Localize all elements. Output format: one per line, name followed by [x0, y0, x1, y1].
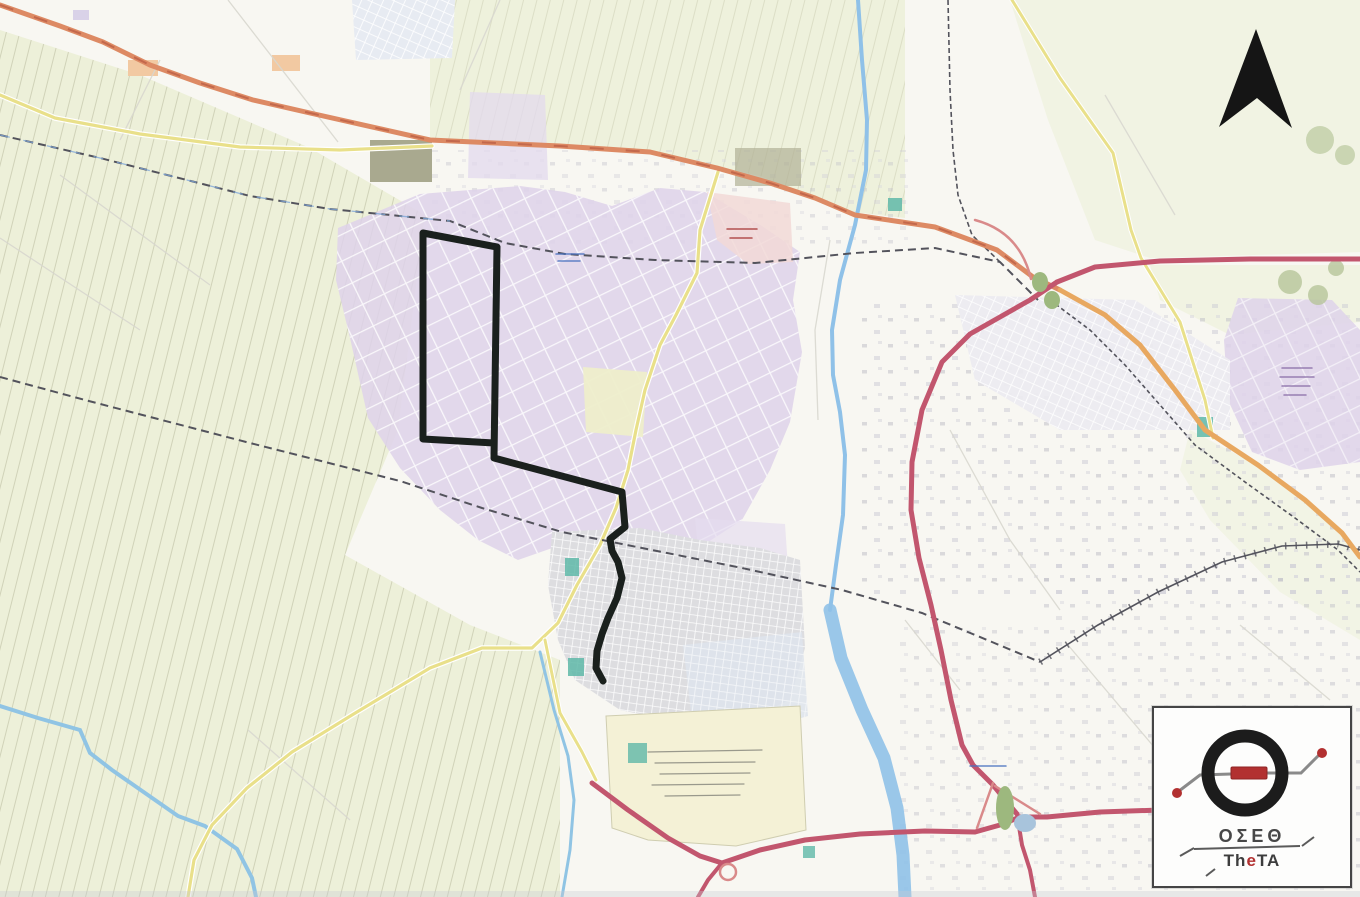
interchange-water: [1014, 814, 1036, 832]
emblem-right-node: [1317, 748, 1327, 758]
teal-field-5: [628, 743, 647, 763]
tree-patch-3: [1328, 260, 1344, 276]
teal-field-6: [803, 846, 815, 858]
interchange-green-1: [1032, 272, 1048, 292]
purple-block-nw: [73, 10, 89, 20]
teal-field-3: [888, 198, 902, 211]
emblem-left-node: [1172, 788, 1182, 798]
zone-grid-northwest-streets: [352, 0, 455, 60]
teal-field-2: [568, 658, 584, 676]
tree-patch-1: [1278, 270, 1302, 294]
tree-patch-4: [1306, 126, 1334, 154]
logo-text-red-e: e: [1246, 851, 1256, 870]
scan-edge: [0, 891, 1360, 897]
logo-text-latin-pre: Th: [1224, 851, 1247, 870]
tree-patch-5: [1335, 145, 1355, 165]
logo-text-greek: ΟΣΕΘ: [1154, 826, 1350, 847]
theta-red-bar: [1231, 767, 1267, 779]
logo-text-latin: TheTA: [1154, 851, 1350, 871]
interchange-green-3: [996, 786, 1014, 830]
zone-industrial-patch-north: [468, 92, 548, 180]
zone-campus: [606, 706, 806, 846]
logo-text-latin-post: TA: [1257, 851, 1280, 870]
interchange-green-2: [1044, 291, 1060, 309]
oseth-theta-logo-box: ΟΣΕΘ TheTA: [1152, 706, 1352, 888]
teal-field-1: [565, 558, 579, 576]
tree-patch-2: [1308, 285, 1328, 305]
